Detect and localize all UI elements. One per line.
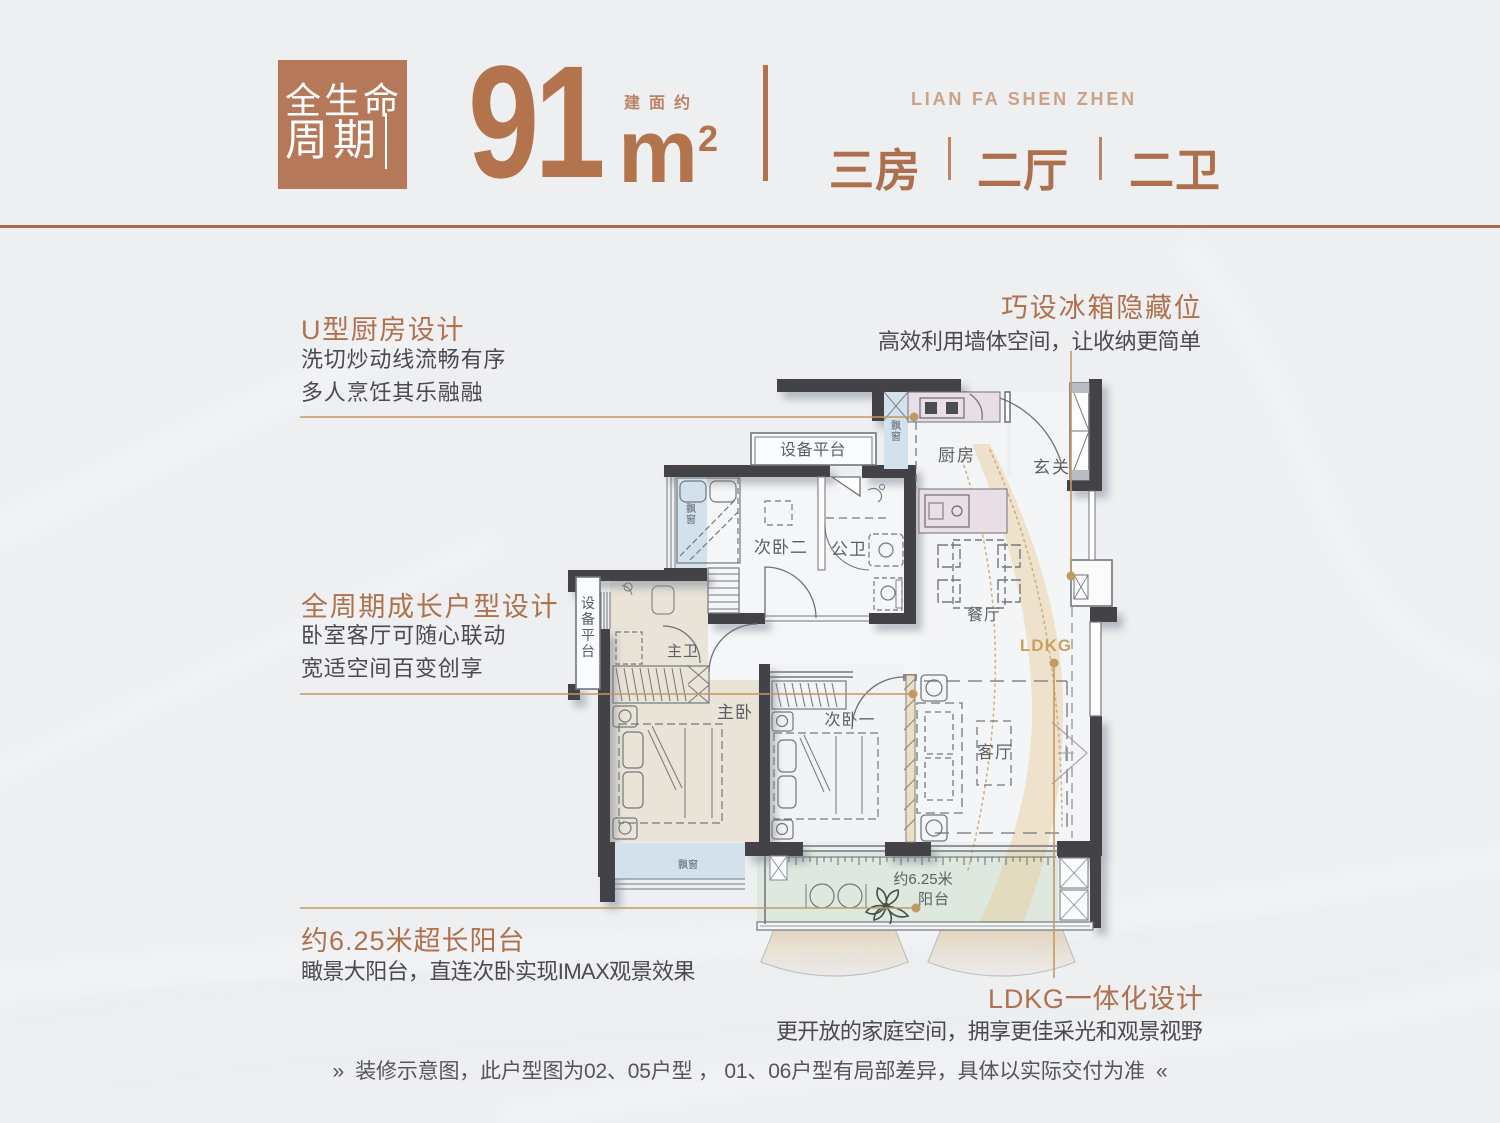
svg-text:LDKG: LDKG [1020, 636, 1072, 655]
svg-text:次卧二: 次卧二 [754, 538, 808, 557]
svg-text:厨房: 厨房 [938, 446, 976, 465]
svg-text:阳台: 阳台 [918, 891, 950, 908]
svg-text:飘窗: 飘窗 [678, 858, 698, 871]
svg-text:主卫: 主卫 [667, 643, 699, 660]
svg-text:客厅: 客厅 [977, 743, 1013, 762]
svg-text:次卧一: 次卧一 [824, 711, 875, 729]
svg-text:飘窗: 飘窗 [686, 503, 696, 526]
svg-text:设备平台: 设备平台 [780, 441, 846, 459]
svg-text:餐厅: 餐厅 [967, 606, 1001, 624]
svg-text:约6.25米: 约6.25米 [893, 871, 952, 888]
svg-text:玄关: 玄关 [1033, 458, 1071, 477]
svg-text:公卫: 公卫 [831, 540, 867, 559]
svg-text:主卧: 主卧 [717, 703, 753, 722]
svg-text:设备平台: 设备平台 [581, 595, 595, 659]
svg-text:飘窗: 飘窗 [891, 420, 901, 443]
